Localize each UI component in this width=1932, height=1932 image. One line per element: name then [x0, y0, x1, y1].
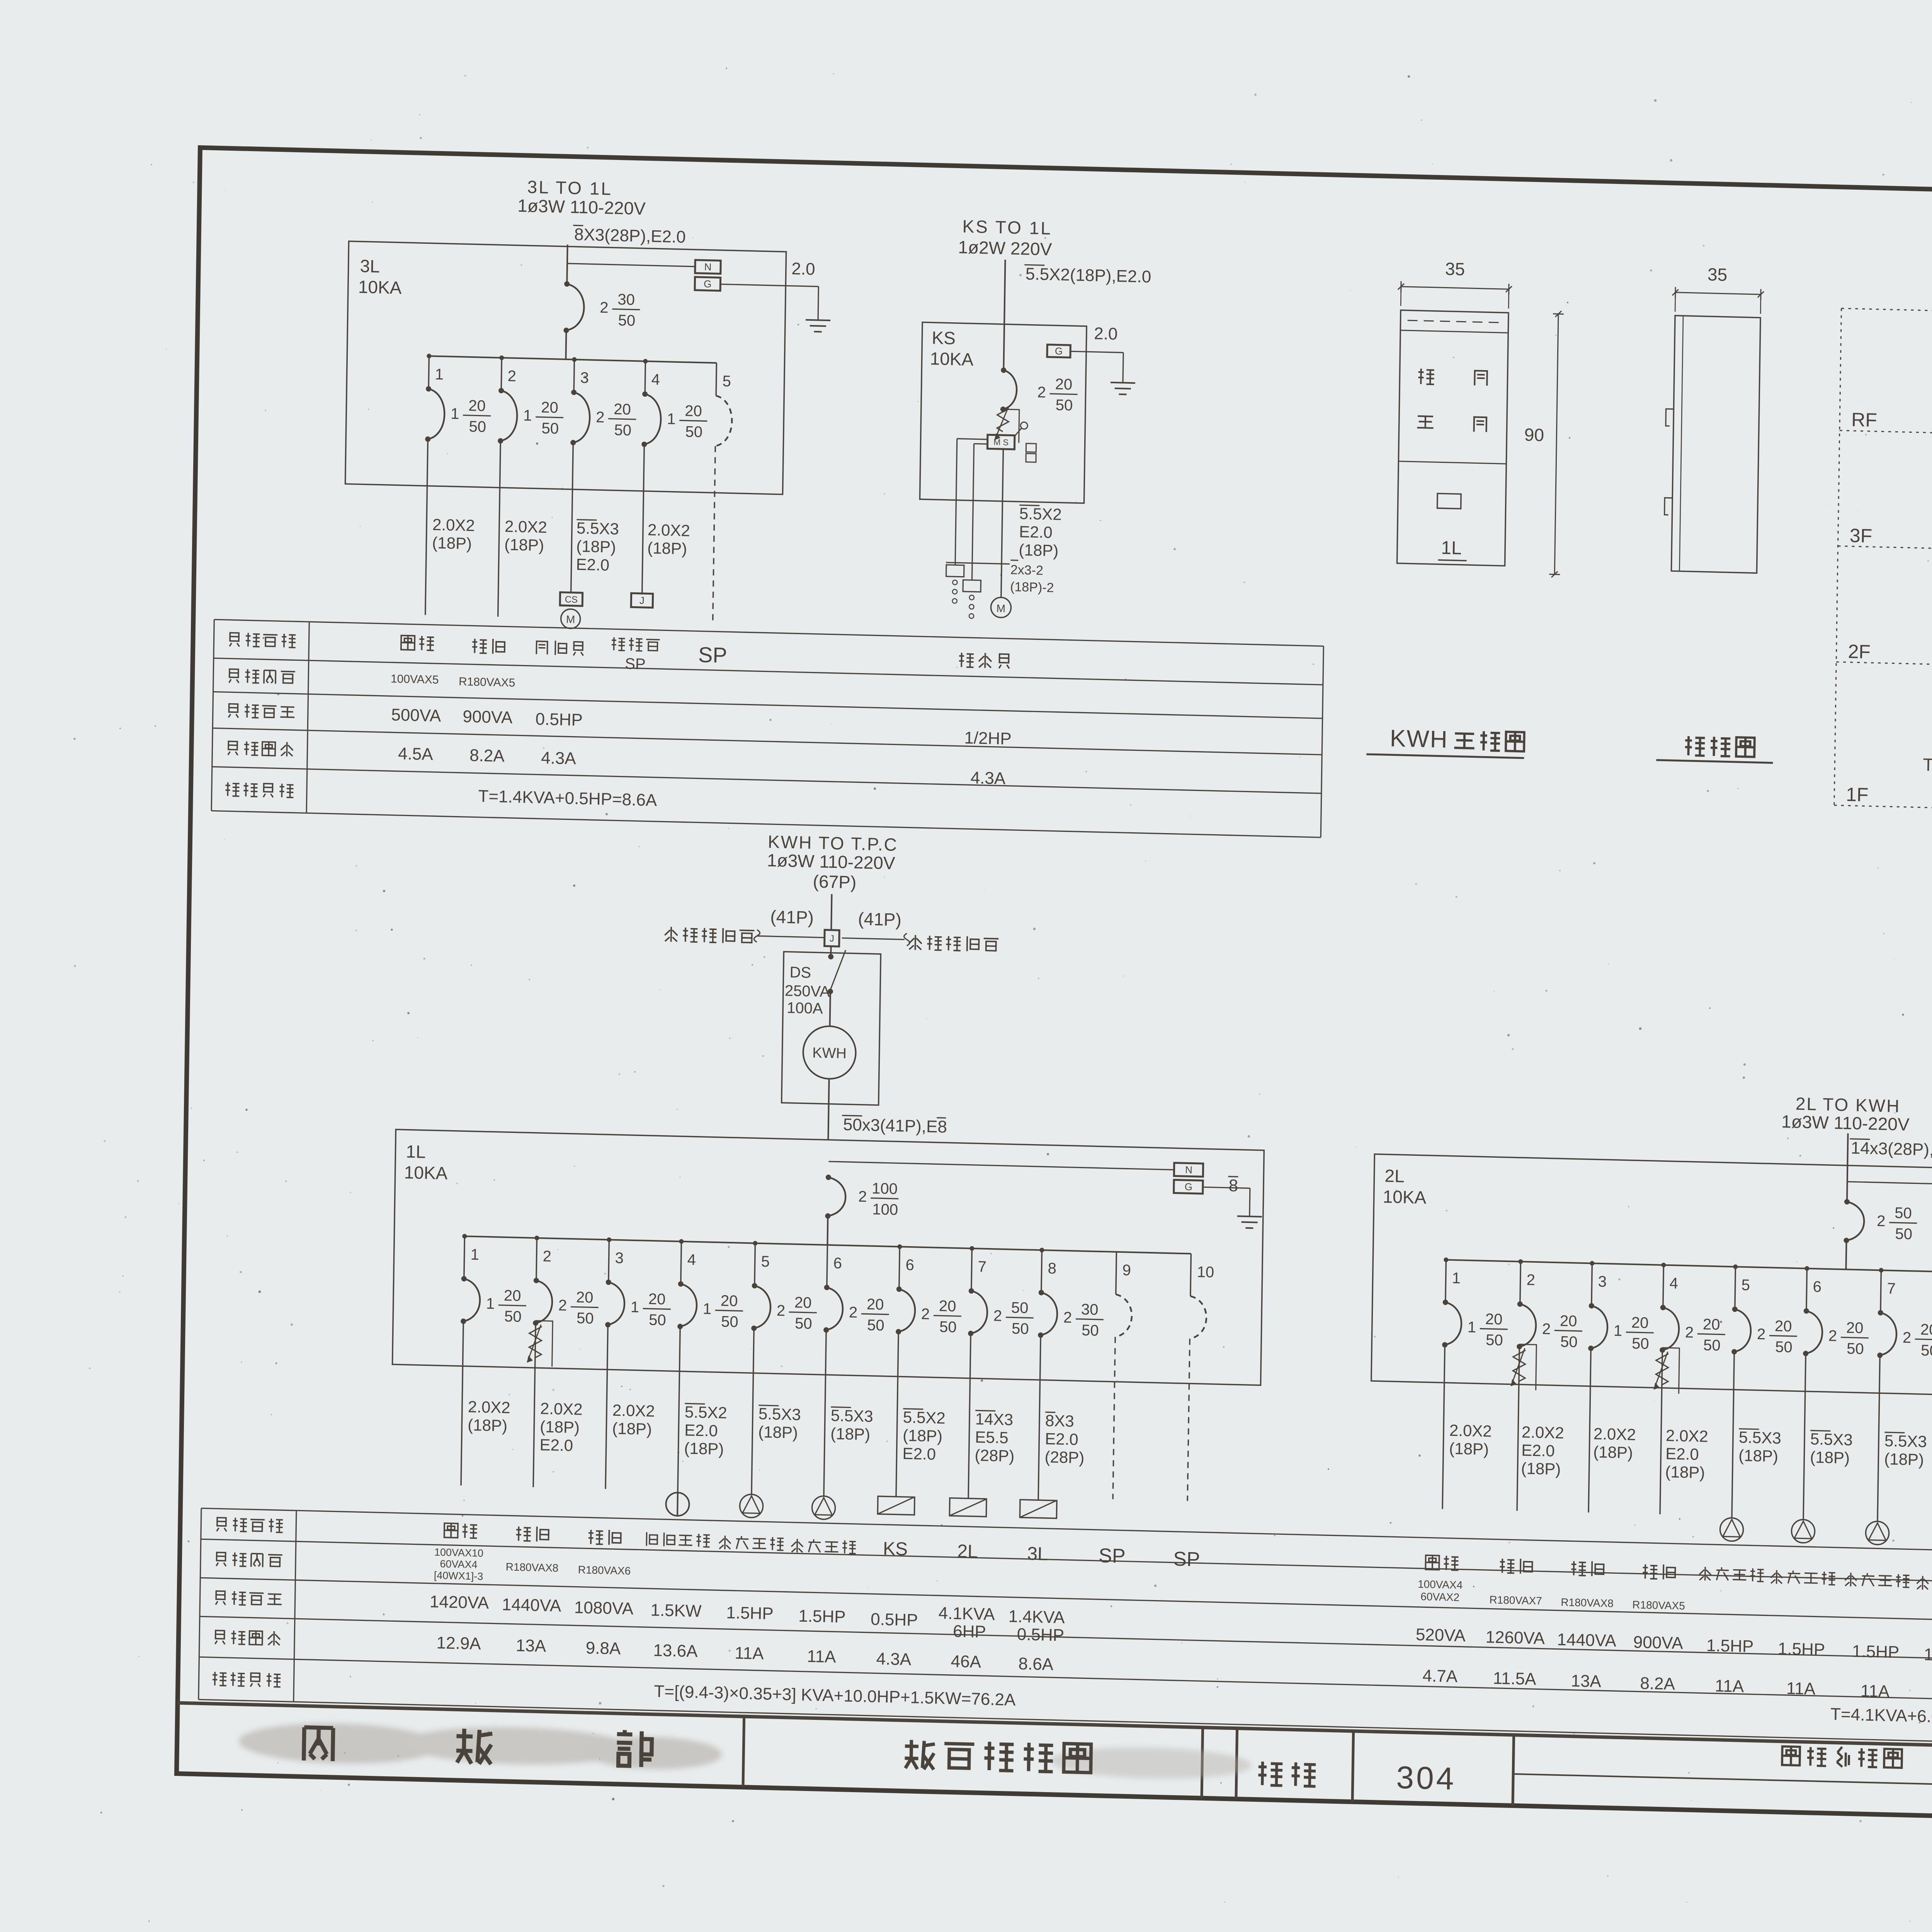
svg-text:2: 2 [993, 1307, 1002, 1325]
svg-text:5.5X2: 5.5X2 [903, 1408, 946, 1427]
svg-text:2: 2 [543, 1248, 551, 1265]
svg-text:4.3A: 4.3A [541, 748, 577, 768]
svg-text:J: J [639, 595, 645, 606]
svg-text:N: N [704, 261, 711, 272]
svg-text:50: 50 [504, 1308, 522, 1325]
svg-text:3: 3 [1598, 1273, 1607, 1291]
svg-text:10: 10 [1197, 1264, 1214, 1281]
svg-text:35: 35 [1445, 259, 1465, 279]
svg-text:20: 20 [1485, 1311, 1503, 1328]
svg-text:3: 3 [615, 1250, 624, 1267]
svg-text:20: 20 [721, 1292, 738, 1310]
svg-text:CS: CS [565, 594, 578, 605]
svg-text:8.6A: 8.6A [1018, 1654, 1054, 1674]
svg-text:4.3A: 4.3A [970, 768, 1006, 788]
svg-text:8.2A: 8.2A [1640, 1674, 1675, 1694]
svg-text:0.5HP: 0.5HP [1017, 1625, 1064, 1645]
svg-text:35: 35 [1708, 264, 1728, 285]
svg-text:1260VA: 1260VA [1485, 1628, 1545, 1648]
svg-text:R180VAX5: R180VAX5 [459, 675, 515, 690]
svg-text:520VA: 520VA [1416, 1625, 1466, 1645]
svg-text:(18P): (18P) [830, 1424, 870, 1443]
svg-text:4.3A: 4.3A [876, 1649, 912, 1669]
svg-text:N: N [1185, 1164, 1192, 1175]
svg-text:(18P): (18P) [1019, 541, 1058, 560]
svg-text:50: 50 [1012, 1320, 1029, 1337]
svg-text:[40WX1]-3: [40WX1]-3 [434, 1570, 483, 1582]
svg-text:1: 1 [486, 1295, 495, 1313]
svg-text:20: 20 [541, 399, 558, 416]
svg-text:1: 1 [631, 1299, 639, 1316]
svg-text:2: 2 [600, 299, 609, 316]
svg-text:14x3(28P),E5.5: 14x3(28P),E5.5 [1851, 1138, 1932, 1160]
svg-text:SP: SP [625, 655, 646, 673]
svg-text:2.0X2: 2.0X2 [1522, 1423, 1564, 1442]
svg-text:6: 6 [1813, 1278, 1821, 1296]
svg-text:SP: SP [698, 642, 728, 667]
svg-text:30: 30 [617, 291, 635, 308]
svg-text:3L: 3L [1027, 1544, 1048, 1565]
svg-text:KS TO 1L: KS TO 1L [962, 216, 1052, 238]
svg-text:E2.0: E2.0 [1045, 1430, 1078, 1449]
svg-text:8: 8 [1228, 1176, 1238, 1196]
svg-text:50: 50 [1895, 1225, 1912, 1243]
svg-text:50: 50 [1486, 1332, 1503, 1349]
svg-text:E2.0: E2.0 [1665, 1444, 1699, 1463]
svg-text:900VA: 900VA [463, 707, 513, 727]
svg-text:100VAX5: 100VAX5 [391, 672, 439, 686]
svg-text:60VAX2: 60VAX2 [1420, 1590, 1459, 1603]
svg-text:(18P): (18P) [1738, 1446, 1778, 1465]
svg-text:3L: 3L [360, 256, 380, 276]
svg-text:2: 2 [596, 409, 605, 426]
svg-text:20: 20 [1560, 1312, 1577, 1330]
svg-text:M: M [566, 613, 575, 626]
svg-text:5.5X3: 5.5X3 [577, 519, 619, 538]
svg-text:20: 20 [614, 401, 631, 418]
svg-text:9.8A: 9.8A [585, 1638, 621, 1658]
svg-text:1ø2W 220V: 1ø2W 220V [958, 237, 1052, 259]
svg-text:50: 50 [721, 1313, 738, 1330]
svg-text:E2.0: E2.0 [902, 1444, 936, 1463]
svg-text:50: 50 [1895, 1204, 1912, 1222]
svg-text:2: 2 [1526, 1271, 1535, 1289]
svg-text:(18P): (18P) [612, 1419, 652, 1438]
svg-text:50: 50 [1775, 1338, 1793, 1356]
svg-text:(41P): (41P) [858, 909, 901, 930]
svg-text:1.5HP: 1.5HP [1852, 1642, 1900, 1662]
svg-text:250VA: 250VA [785, 982, 830, 1000]
svg-text:2.0X2: 2.0X2 [1449, 1421, 1492, 1440]
svg-text:8X3: 8X3 [1045, 1412, 1074, 1430]
svg-text:50x3(41P),E8: 50x3(41P),E8 [843, 1115, 947, 1136]
svg-text:2: 2 [1037, 384, 1046, 401]
svg-text:10KA: 10KA [1383, 1186, 1427, 1207]
svg-text:50: 50 [1703, 1337, 1721, 1354]
svg-text:5.5X3: 5.5X3 [1739, 1428, 1781, 1447]
svg-text:2.0X2: 2.0X2 [468, 1398, 510, 1417]
svg-text:KS: KS [883, 1539, 908, 1560]
svg-text:(18P): (18P) [1810, 1448, 1850, 1467]
svg-text:(18P): (18P) [903, 1426, 942, 1445]
svg-text:(18P): (18P) [504, 535, 544, 554]
svg-text:0.5HP: 0.5HP [535, 709, 583, 730]
svg-text:11A: 11A [807, 1647, 836, 1667]
svg-text:3L TO 1L: 3L TO 1L [527, 177, 612, 199]
svg-text:20: 20 [939, 1298, 956, 1315]
svg-text:5.5X2(18P),E2.0: 5.5X2(18P),E2.0 [1026, 264, 1151, 286]
svg-text:2: 2 [1542, 1320, 1551, 1338]
svg-text:20: 20 [1055, 376, 1072, 393]
svg-text:KWH: KWH [812, 1045, 847, 1062]
svg-text:13A: 13A [516, 1636, 547, 1656]
svg-text:DS: DS [789, 964, 811, 981]
svg-text:(18P): (18P) [1521, 1459, 1561, 1478]
svg-text:2.0X2: 2.0X2 [540, 1399, 583, 1418]
svg-text:4: 4 [651, 371, 660, 388]
svg-text:5.5X3: 5.5X3 [1810, 1430, 1853, 1449]
svg-text:1.5HP: 1.5HP [1924, 1645, 1932, 1665]
svg-text:4: 4 [1669, 1275, 1678, 1292]
svg-text:1: 1 [1468, 1319, 1476, 1336]
svg-text:50: 50 [541, 420, 559, 437]
svg-text:R180VAX5: R180VAX5 [1632, 1599, 1685, 1612]
svg-text:4.7A: 4.7A [1422, 1666, 1458, 1686]
svg-text:1L: 1L [1441, 537, 1462, 558]
svg-text:11A: 11A [1715, 1676, 1744, 1696]
svg-text:(18P): (18P) [758, 1423, 798, 1442]
svg-text:1080VA: 1080VA [574, 1598, 634, 1619]
svg-text:11A: 11A [1861, 1681, 1890, 1701]
svg-text:50: 50 [1921, 1342, 1932, 1359]
svg-text:50: 50 [1847, 1340, 1864, 1357]
svg-text:20: 20 [794, 1294, 812, 1311]
svg-text:(41P): (41P) [770, 906, 814, 928]
svg-text:2.0X2: 2.0X2 [648, 520, 690, 540]
svg-text:2.0X2: 2.0X2 [432, 515, 475, 535]
svg-text:2.0X2: 2.0X2 [1594, 1425, 1636, 1444]
svg-text:E2.0: E2.0 [684, 1421, 718, 1440]
svg-text:5.5X2: 5.5X2 [685, 1403, 727, 1422]
svg-text:5.5X3: 5.5X3 [1884, 1432, 1927, 1451]
svg-text:(18P): (18P) [1449, 1439, 1489, 1458]
svg-text:1: 1 [451, 405, 459, 423]
svg-text:1ø3W 110-220V: 1ø3W 110-220V [1781, 1111, 1910, 1134]
svg-text:(18P): (18P) [684, 1439, 724, 1458]
svg-text:50: 50 [1082, 1322, 1099, 1339]
svg-text:50: 50 [685, 423, 702, 440]
svg-text:R180VAX7: R180VAX7 [1489, 1594, 1542, 1607]
svg-text:2: 2 [1685, 1324, 1694, 1341]
svg-text:11.5A: 11.5A [1493, 1669, 1537, 1689]
svg-text:5: 5 [1741, 1277, 1750, 1294]
svg-text:2: 2 [921, 1306, 930, 1323]
svg-text:10KA: 10KA [930, 349, 974, 370]
svg-text:J: J [830, 934, 834, 944]
svg-text:M: M [997, 602, 1006, 615]
svg-text:1ø3W 110-220V: 1ø3W 110-220V [767, 850, 896, 873]
svg-text:R180VAX8: R180VAX8 [1561, 1596, 1614, 1609]
svg-text:1.5HP: 1.5HP [1706, 1636, 1754, 1656]
svg-text:4: 4 [687, 1251, 696, 1269]
svg-text:50: 50 [649, 1311, 666, 1329]
svg-text:50: 50 [614, 422, 631, 439]
svg-text:3F: 3F [1850, 525, 1872, 547]
svg-text:8.2A: 8.2A [469, 746, 505, 765]
svg-text:100VAX10: 100VAX10 [434, 1546, 484, 1559]
svg-text:E2.0: E2.0 [1019, 522, 1053, 541]
svg-text:1.5KW: 1.5KW [650, 1600, 702, 1621]
svg-text:20: 20 [1775, 1318, 1792, 1335]
svg-text:90: 90 [1524, 424, 1544, 445]
svg-text:7: 7 [978, 1258, 986, 1276]
svg-text:1440VA: 1440VA [1557, 1630, 1617, 1651]
svg-text:30: 30 [1081, 1301, 1099, 1318]
svg-text:(28P): (28P) [1044, 1448, 1084, 1467]
svg-text:500VA: 500VA [391, 705, 441, 725]
svg-text:R180VAX6: R180VAX6 [578, 1564, 631, 1577]
svg-text:E2.0: E2.0 [1521, 1441, 1555, 1460]
svg-text:(18P): (18P) [576, 537, 616, 556]
svg-text:1: 1 [523, 407, 532, 424]
svg-text:1F: 1F [1846, 784, 1869, 806]
svg-text:20: 20 [867, 1296, 884, 1313]
svg-text:20: 20 [504, 1287, 521, 1304]
svg-text:20: 20 [648, 1291, 666, 1308]
svg-text:6HP: 6HP [953, 1622, 986, 1641]
svg-text:1: 1 [470, 1246, 479, 1264]
svg-text:G: G [1055, 345, 1063, 357]
svg-text:50: 50 [1056, 396, 1073, 414]
svg-text:50: 50 [618, 312, 635, 329]
svg-text:5.5X3: 5.5X3 [759, 1405, 801, 1424]
svg-text:G: G [1185, 1181, 1193, 1192]
svg-text:60VAX4: 60VAX4 [440, 1558, 477, 1570]
svg-text:KWH: KWH [1389, 725, 1448, 753]
svg-text:1/2HP: 1/2HP [964, 728, 1012, 748]
svg-text:1: 1 [435, 366, 444, 383]
svg-text:2x3-2: 2x3-2 [1010, 563, 1044, 578]
svg-text:7: 7 [1887, 1280, 1896, 1298]
svg-text:1: 1 [667, 410, 676, 428]
svg-text:20: 20 [1920, 1321, 1932, 1338]
svg-text:5.5X2: 5.5X2 [1019, 504, 1062, 524]
svg-text:E2.0: E2.0 [576, 555, 609, 574]
svg-text:(67P): (67P) [813, 871, 856, 893]
svg-text:2: 2 [858, 1188, 867, 1206]
svg-text:(18P)-2: (18P)-2 [1010, 580, 1054, 595]
svg-text:2: 2 [507, 367, 516, 385]
svg-text:KS: KS [932, 328, 956, 348]
svg-text:2: 2 [558, 1297, 567, 1314]
svg-text:9: 9 [1122, 1262, 1131, 1279]
svg-text:(18P): (18P) [1884, 1450, 1924, 1469]
svg-text:R180VAX8: R180VAX8 [506, 1561, 559, 1574]
svg-text:50: 50 [795, 1315, 812, 1332]
svg-text:1420VA: 1420VA [430, 1592, 490, 1613]
svg-text:1.4KVA: 1.4KVA [1008, 1607, 1065, 1628]
svg-text:SP: SP [1173, 1548, 1200, 1571]
svg-text:50: 50 [867, 1316, 884, 1334]
svg-text:8X3(28P),E2.0: 8X3(28P),E2.0 [574, 225, 686, 247]
svg-text:G: G [704, 278, 712, 289]
svg-text:2.0X2: 2.0X2 [505, 517, 547, 536]
svg-text:100VAX4: 100VAX4 [1418, 1578, 1463, 1591]
svg-text:SP: SP [1099, 1544, 1126, 1568]
svg-text:E5.5: E5.5 [975, 1428, 1009, 1447]
svg-text:2: 2 [777, 1302, 786, 1320]
svg-text:20: 20 [1703, 1316, 1720, 1333]
svg-text:50: 50 [577, 1310, 594, 1327]
svg-text:50: 50 [469, 418, 486, 435]
svg-text:4.5A: 4.5A [398, 744, 434, 764]
svg-text:2.0: 2.0 [791, 259, 815, 279]
svg-text:13A: 13A [1571, 1672, 1602, 1691]
svg-text:20: 20 [685, 402, 702, 420]
svg-text:20: 20 [1846, 1319, 1864, 1337]
svg-text:13.6A: 13.6A [653, 1641, 698, 1661]
svg-text:8: 8 [1048, 1260, 1056, 1277]
svg-text:5.5X3: 5.5X3 [831, 1406, 873, 1425]
svg-text:100: 100 [872, 1201, 898, 1219]
svg-text:4.1KVA: 4.1KVA [938, 1604, 995, 1624]
svg-text:5: 5 [722, 373, 731, 390]
svg-text:50: 50 [1632, 1335, 1649, 1352]
svg-text:50: 50 [1560, 1333, 1578, 1351]
svg-text:2: 2 [1828, 1327, 1837, 1345]
svg-text:2.0: 2.0 [1094, 324, 1118, 344]
svg-text:10KA: 10KA [404, 1162, 448, 1184]
svg-text:2: 2 [1063, 1309, 1072, 1327]
svg-text:TO T.P.C: TO T.P.C [1923, 755, 1932, 776]
svg-text:6: 6 [833, 1255, 842, 1272]
svg-text:3: 3 [580, 369, 589, 387]
svg-text:M S: M S [993, 437, 1009, 447]
svg-text:1440VA: 1440VA [502, 1595, 562, 1616]
svg-text:2: 2 [849, 1304, 858, 1321]
svg-text:50: 50 [1011, 1299, 1029, 1316]
svg-text:11A: 11A [735, 1644, 764, 1663]
svg-text:1L: 1L [406, 1141, 426, 1162]
svg-text:1: 1 [703, 1300, 712, 1318]
svg-text:2.0X2: 2.0X2 [612, 1401, 655, 1420]
svg-text:20: 20 [468, 397, 486, 415]
svg-text:20: 20 [576, 1289, 594, 1306]
svg-text:(18P): (18P) [647, 539, 687, 558]
svg-text:(18P): (18P) [432, 534, 472, 553]
svg-text:2: 2 [1757, 1326, 1766, 1343]
svg-text:50: 50 [939, 1318, 957, 1336]
svg-text:(18P): (18P) [540, 1417, 580, 1436]
svg-text:14X3: 14X3 [975, 1410, 1014, 1429]
svg-text:1.5HP: 1.5HP [1778, 1639, 1825, 1659]
svg-text:1.5HP: 1.5HP [798, 1606, 846, 1626]
svg-text:2L: 2L [1384, 1165, 1405, 1186]
svg-text:2.0X2: 2.0X2 [1666, 1426, 1708, 1446]
svg-text:(28P): (28P) [975, 1446, 1014, 1465]
svg-text:(18P): (18P) [1665, 1463, 1705, 1481]
svg-text:100: 100 [872, 1180, 898, 1198]
svg-text:11A: 11A [1786, 1679, 1816, 1699]
svg-text:(18P): (18P) [468, 1416, 507, 1435]
svg-text:12.9A: 12.9A [436, 1633, 481, 1653]
svg-text:1: 1 [1452, 1270, 1461, 1287]
svg-text:5: 5 [761, 1253, 770, 1270]
svg-text:2L: 2L [957, 1541, 978, 1562]
svg-text:2: 2 [1877, 1213, 1886, 1230]
svg-text:0.5HP: 0.5HP [871, 1610, 918, 1630]
svg-text:100A: 100A [787, 999, 823, 1017]
svg-text:1ø3W 110-220V: 1ø3W 110-220V [517, 196, 646, 219]
svg-text:(18P): (18P) [1593, 1443, 1633, 1462]
svg-text:1: 1 [1614, 1322, 1622, 1340]
svg-text:46A: 46A [951, 1652, 981, 1672]
svg-text:6: 6 [905, 1257, 914, 1274]
svg-text:20: 20 [1631, 1314, 1649, 1332]
svg-text:900VA: 900VA [1633, 1633, 1683, 1653]
svg-text:1.5HP: 1.5HP [726, 1603, 774, 1623]
svg-text:10KA: 10KA [358, 277, 402, 298]
svg-text:304: 304 [1396, 1760, 1456, 1797]
svg-text:2: 2 [1903, 1329, 1912, 1347]
svg-text:E2.0: E2.0 [539, 1435, 573, 1454]
svg-text:2F: 2F [1848, 641, 1871, 663]
svg-text:RF: RF [1851, 409, 1877, 431]
